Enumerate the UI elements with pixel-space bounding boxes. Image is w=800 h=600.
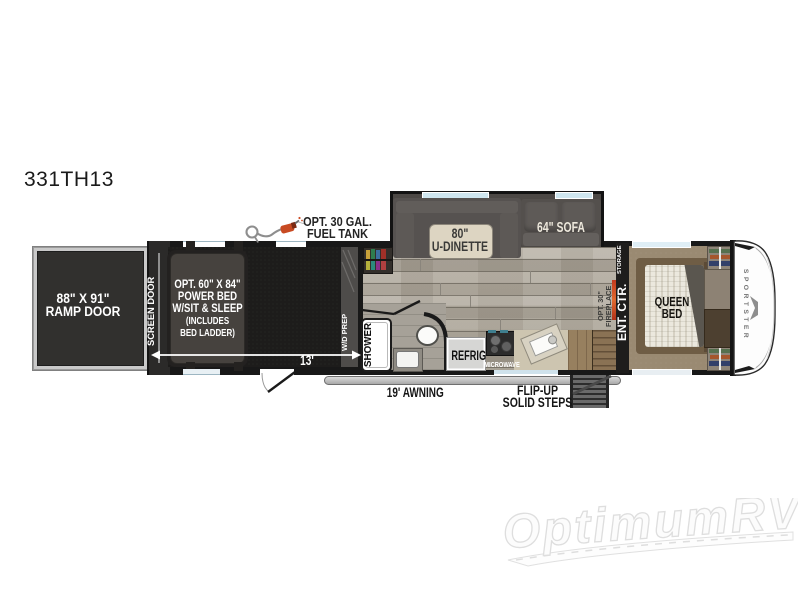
svg-text:SPORTSTER: SPORTSTER: [742, 269, 749, 341]
